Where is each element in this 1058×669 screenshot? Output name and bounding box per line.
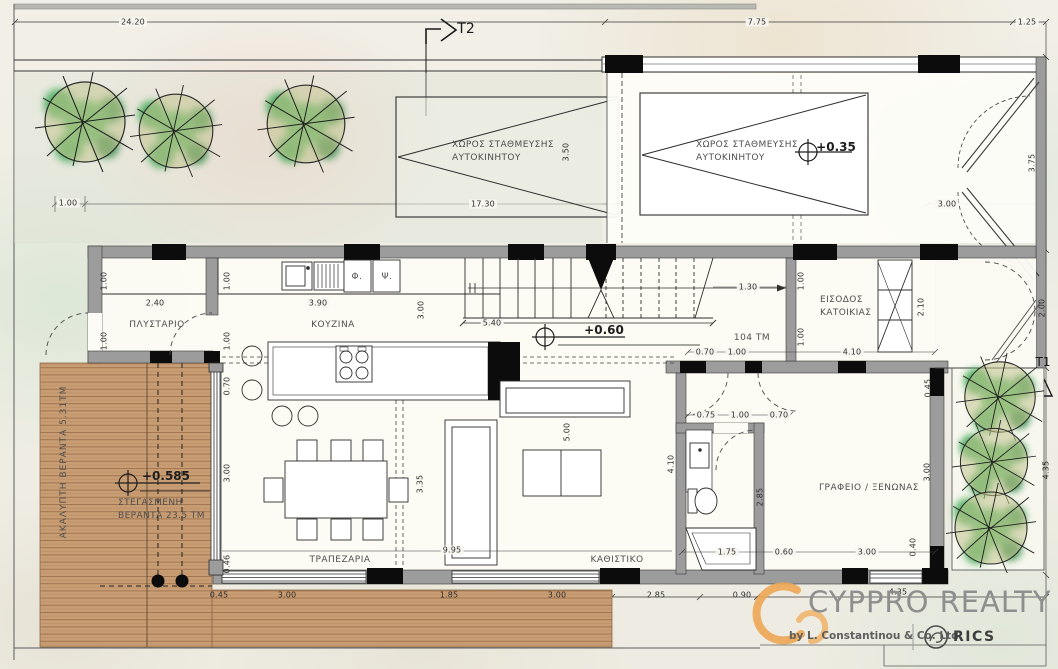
section-label-t2: T2 <box>457 21 474 37</box>
dim-e070: 0.70 <box>694 348 717 357</box>
dim-o040: 0.40 <box>909 538 918 557</box>
dim-e410: 4.10 <box>841 348 864 357</box>
dim-parking-width: 3.50 <box>562 143 571 162</box>
room-label-open-veranda: ΑΚΑΛΥΠΤΗ ΒΕΡΑΝΤΑ 5.31ΤΜ <box>59 386 69 539</box>
dim-kitchen-w: 3.90 <box>307 299 330 308</box>
dim-b410: 4.10 <box>667 455 676 474</box>
dim-b070: 0.70 <box>768 411 791 420</box>
dim-l100a: 1.00 <box>100 272 109 291</box>
dim-bt090: 0.90 <box>733 591 752 600</box>
dim-garage-span: 7.75 <box>746 18 769 27</box>
rics-label: RICS <box>953 629 996 645</box>
room-label-laundry: ΠΛΥΣΤΑΡΙΟ <box>129 320 184 330</box>
room-label-parking-outdoor: ΧΩΡΟΣ ΣΤΑΘΜΕΥΣΗΣ ΑΥΤΟΚΙΝΗΤΟΥ <box>452 139 554 165</box>
dim-b100: 1.00 <box>729 411 752 420</box>
room-label-living: ΚΑΘΙΣΤΙΚΟ <box>590 555 643 565</box>
dim-k100b: 1.00 <box>223 332 232 351</box>
dim-l100b: 1.00 <box>100 332 109 351</box>
dim-e210: 2.10 <box>917 298 926 317</box>
dim-bt300a: 3.00 <box>278 591 297 600</box>
dim-lv500: 5.00 <box>563 423 572 442</box>
dim-b060: 0.60 <box>773 548 796 557</box>
appliance-label-f: Φ. <box>352 272 363 282</box>
dim-e100b: 1.00 <box>797 328 806 347</box>
room-label-dining: ΤΡΑΠΕΖΑΡΙΑ <box>309 555 370 565</box>
dim-o300: 3.00 <box>923 463 932 482</box>
dim-right-435: 4.35 <box>1042 461 1051 480</box>
dim-dn335: 3.35 <box>416 475 425 494</box>
level-veranda: +0.585 <box>142 469 190 483</box>
room-label-covered-veranda: ΣΤΕΓΑΣΜΕΝΗ ΒΕΡΑΝΤΑ 23.5 ΤΜ <box>118 497 205 523</box>
appliance-label-p: Ψ. <box>382 272 393 282</box>
level-ground: +0.60 <box>584 323 624 337</box>
dim-dn995: 9.95 <box>441 546 464 555</box>
area-total-label: 104 ΤΜ <box>734 333 770 343</box>
dim-garage-side: 3.00 <box>936 200 959 209</box>
dim-stair-gap: 1.30 <box>737 283 760 292</box>
dim-b285: 2.85 <box>756 488 765 507</box>
room-label-entrance: ΕΙΣΟΔΟΣ ΚΑΤΟΙΚΙΑΣ <box>820 294 871 320</box>
dim-offset: 1.00 <box>57 199 80 208</box>
dim-bt045: 0.45 <box>210 591 229 600</box>
dim-laundry-w: 2.40 <box>144 299 167 308</box>
brand-byline: by L. Constantinou & Co. Ltd <box>789 630 959 642</box>
section-label-t1: Τ1 <box>1036 355 1051 369</box>
dim-b075: 0.75 <box>695 411 718 420</box>
dim-right-200: 2.00 <box>1038 299 1047 318</box>
dim-e100: 1.00 <box>726 348 749 357</box>
dim-k100a: 1.00 <box>223 272 232 291</box>
dim-parking-length: 17.30 <box>469 200 497 209</box>
dim-bt185: 1.85 <box>440 591 459 600</box>
floor-plan-drawing <box>0 0 1058 669</box>
brand-name: CYPPRO REALTY <box>808 585 1052 619</box>
dim-stair-len: 5.40 <box>481 319 504 328</box>
dim-v046: 0.46 <box>223 555 232 574</box>
room-label-office: ΓΡΑΦΕΙΟ / ΞΕΝΩΝΑΣ <box>819 483 919 493</box>
room-label-parking-garage: ΧΩΡΟΣ ΣΤΑΘΜΕΥΣΗΣ ΑΥΤΟΚΙΝΗΤΟΥ <box>696 139 798 165</box>
dim-bt300b: 3.00 <box>548 591 567 600</box>
dim-side-strip: 1.25 <box>1016 18 1039 27</box>
dim-site-width: 24.20 <box>119 18 147 27</box>
floor-plan-canvas: T2 Τ1 24.20 7.75 1.25 1.00 17.30 3.50 3.… <box>0 0 1058 669</box>
dim-k300: 3.00 <box>417 301 426 320</box>
dim-bt285: 2.85 <box>647 591 666 600</box>
dim-e100a: 1.00 <box>797 272 806 291</box>
entrance-steps <box>878 260 912 352</box>
dim-v300: 3.00 <box>223 464 232 483</box>
dim-e045: 0.45 <box>924 379 933 398</box>
room-label-kitchen: ΚΟΥΖΙΝΑ <box>311 320 355 330</box>
level-garage: +0.35 <box>816 140 856 154</box>
dim-k070: 0.70 <box>223 377 232 396</box>
dim-right-375: 3.75 <box>1028 154 1037 173</box>
dim-b175: 1.75 <box>716 548 739 557</box>
dim-b300: 3.00 <box>856 548 879 557</box>
